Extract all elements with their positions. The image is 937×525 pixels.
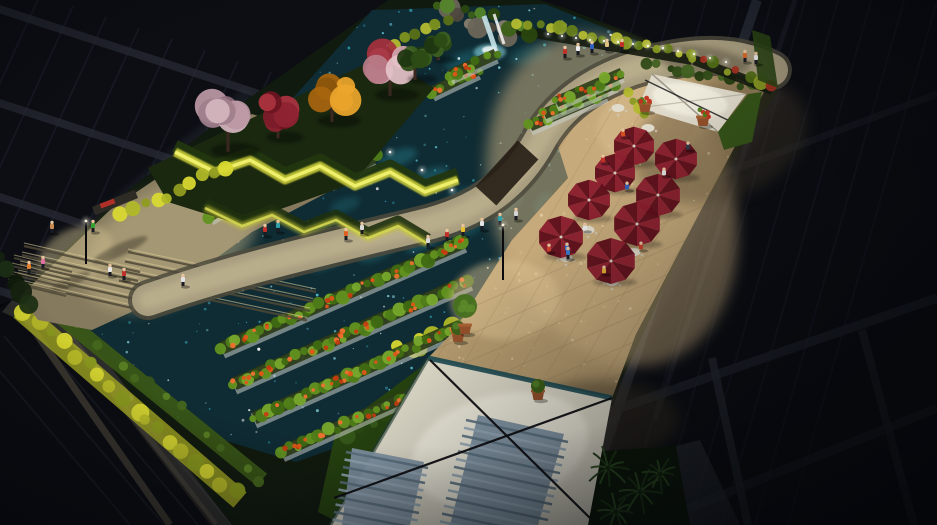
scene-layers [0,0,937,525]
scene-svg [0,0,937,525]
vignette-corner [0,0,937,525]
rooftop-garden-render [0,0,937,525]
